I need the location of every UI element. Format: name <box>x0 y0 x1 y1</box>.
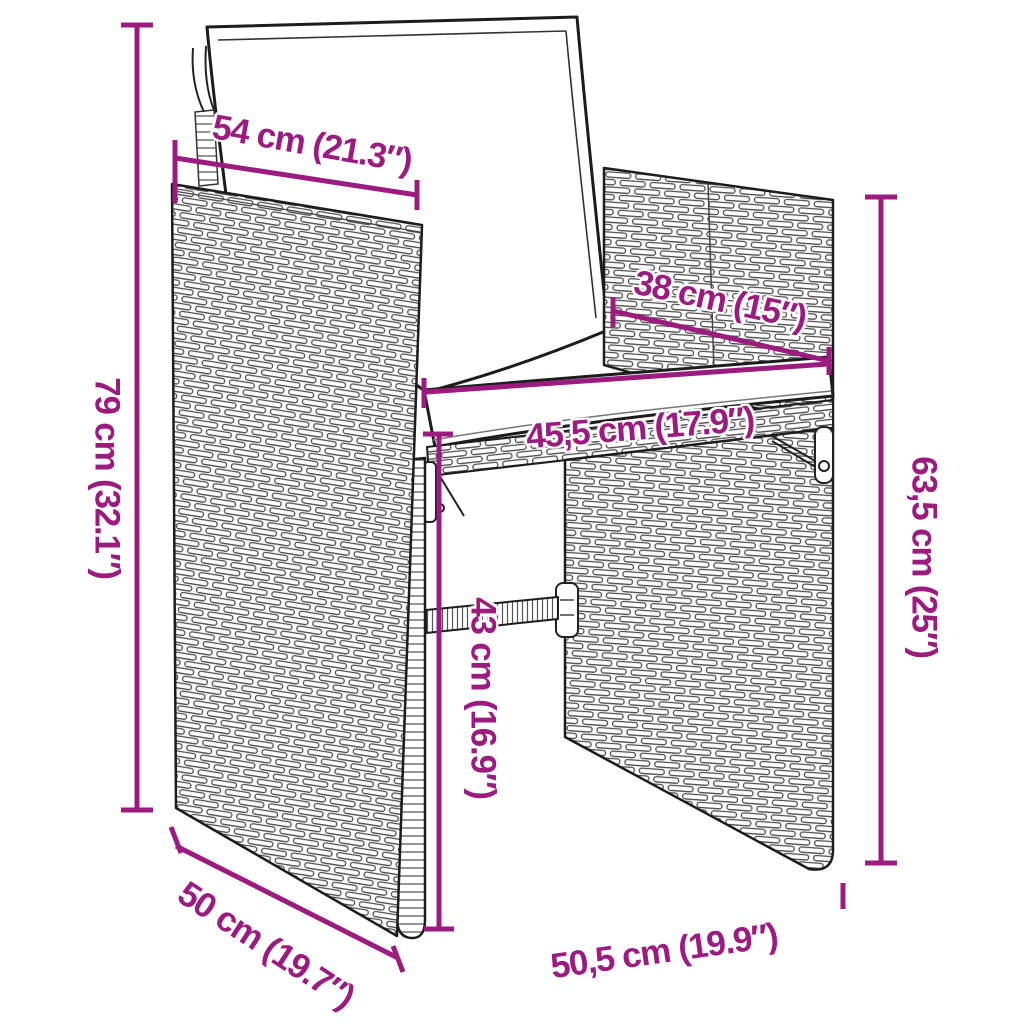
leg-connector <box>556 583 578 637</box>
left-side-panel <box>172 184 422 936</box>
dimension-label-side-height: 63,5 cm (25″) <box>907 456 942 658</box>
right-side-panel <box>565 428 833 870</box>
dimension-label-seat-height: 43 cm (16.9″) <box>466 597 501 799</box>
product-dimension-diagram: 54 cm (21.3″) 38 cm (15″) 45,5 cm (17.9″… <box>0 0 1024 1024</box>
chair-illustration <box>0 0 1024 1024</box>
dimension-label-total-height: 79 cm (32.1″) <box>90 377 125 579</box>
dimension-line-side-height <box>865 197 897 863</box>
